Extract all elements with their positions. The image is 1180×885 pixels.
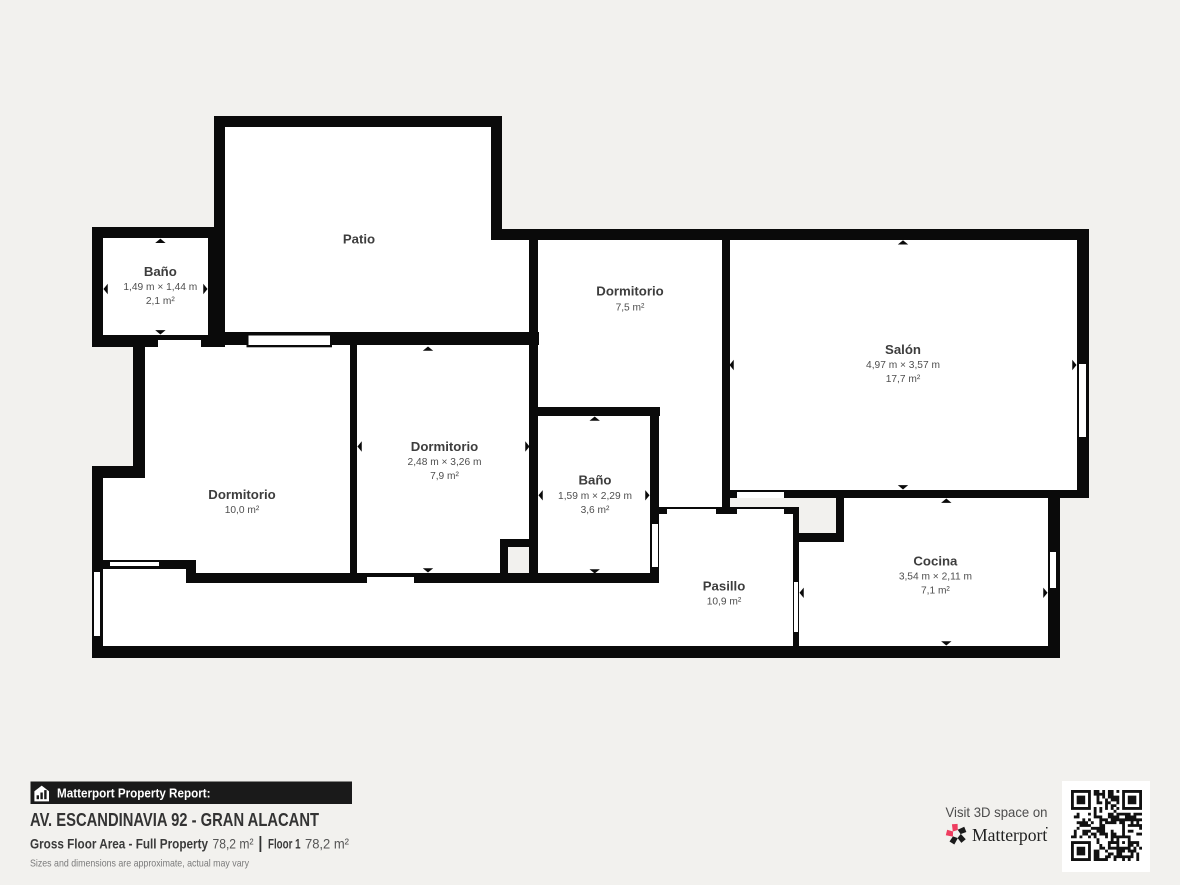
svg-text:7,1 m²: 7,1 m² — [921, 586, 950, 597]
svg-text:78,2 m²: 78,2 m² — [305, 837, 349, 853]
svg-text:78,2 m²: 78,2 m² — [213, 837, 254, 853]
svg-text:10,9 m²: 10,9 m² — [707, 596, 742, 607]
svg-text:Matterport: Matterport — [972, 825, 1047, 845]
svg-text:AV. ESCANDINAVIA 92 - GRAN ALA: AV. ESCANDINAVIA 92 - GRAN ALACANT — [30, 809, 320, 830]
svg-text:Dormitorio: Dormitorio — [411, 439, 478, 454]
svg-text:Dormitorio: Dormitorio — [208, 487, 275, 502]
svg-text:Matterport Property Report:: Matterport Property Report: — [57, 786, 211, 801]
svg-text:3,54 m × 2,11 m: 3,54 m × 2,11 m — [899, 572, 972, 583]
svg-text:Baño: Baño — [579, 473, 612, 488]
svg-text:Salón: Salón — [885, 342, 921, 357]
svg-text:10,0 m²: 10,0 m² — [225, 505, 260, 516]
svg-text:7,9 m²: 7,9 m² — [430, 471, 459, 482]
svg-text:Pasillo: Pasillo — [703, 579, 746, 594]
svg-text:17,7 m²: 17,7 m² — [886, 374, 921, 385]
svg-text:Patio: Patio — [343, 232, 375, 247]
svg-text:Sizes and dimensions are appro: Sizes and dimensions are approximate, ac… — [30, 859, 250, 870]
svg-text:Visit 3D space on: Visit 3D space on — [946, 805, 1048, 820]
svg-text:1,49 m × 1,44 m: 1,49 m × 1,44 m — [123, 282, 197, 293]
svg-text:Floor 1: Floor 1 — [268, 837, 301, 853]
svg-text:Cocina: Cocina — [913, 553, 958, 568]
svg-text:Dormitorio: Dormitorio — [596, 284, 663, 299]
svg-text:2,48 m × 3,26 m: 2,48 m × 3,26 m — [408, 457, 482, 468]
svg-text:3,6 m²: 3,6 m² — [581, 505, 610, 516]
svg-text:7,5 m²: 7,5 m² — [616, 303, 645, 314]
svg-text:2,1 m²: 2,1 m² — [146, 296, 175, 307]
svg-text:Gross Floor Area - Full Proper: Gross Floor Area - Full Property — [30, 837, 208, 853]
svg-text:4,97 m × 3,57 m: 4,97 m × 3,57 m — [866, 360, 940, 371]
svg-text:1,59 m × 2,29 m: 1,59 m × 2,29 m — [558, 491, 632, 502]
svg-text:Baño: Baño — [144, 264, 177, 279]
